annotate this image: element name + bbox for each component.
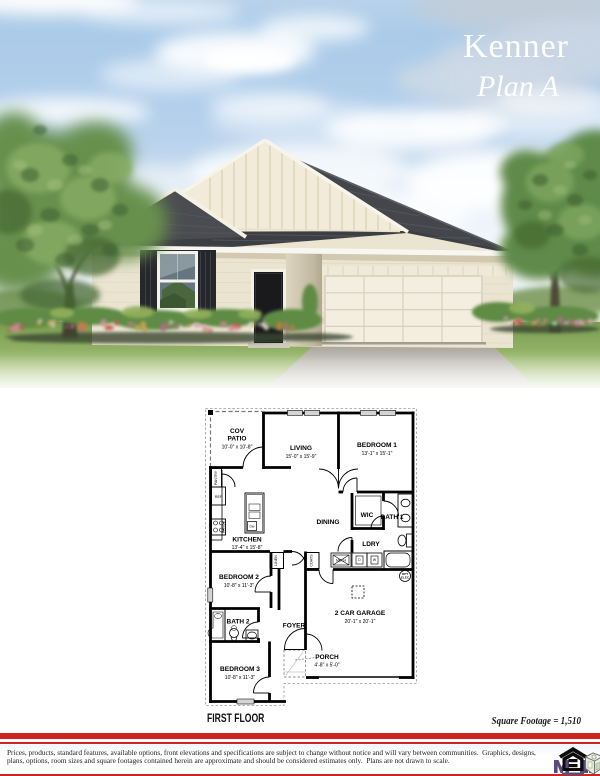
- svg-text:LDRY: LDRY: [362, 541, 380, 548]
- svg-text:BEDROOM 1: BEDROOM 1: [357, 442, 397, 449]
- svg-text:10'-8" x 11'-3": 10'-8" x 11'-3": [225, 675, 256, 681]
- svg-text:BATH 1: BATH 1: [381, 514, 404, 521]
- svg-text:10'-8" x 11'-3": 10'-8" x 11'-3": [224, 583, 255, 589]
- svg-text:BEDROOM 2: BEDROOM 2: [219, 574, 259, 581]
- svg-text:ELEC: ELEC: [401, 576, 410, 580]
- svg-text:LINEN: LINEN: [274, 555, 278, 566]
- svg-text:BATH 2: BATH 2: [227, 619, 250, 626]
- svg-text:PORCH: PORCH: [315, 654, 339, 661]
- svg-text:RANGE: RANGE: [222, 520, 226, 533]
- svg-text:PANTRY: PANTRY: [214, 470, 218, 485]
- svg-text:15'-0" x 15'-9": 15'-0" x 15'-9": [286, 454, 317, 460]
- svg-text:DW: DW: [250, 525, 255, 529]
- svg-text:COATS: COATS: [310, 554, 314, 567]
- svg-text:20'-1" x 20'-1": 20'-1" x 20'-1": [345, 619, 376, 625]
- svg-text:4'-8" x 5'-0": 4'-8" x 5'-0": [314, 663, 339, 669]
- svg-text:COV: COV: [230, 428, 245, 435]
- svg-text:REF: REF: [215, 495, 223, 499]
- svg-text:10'-0" x 10'-8": 10'-0" x 10'-8": [222, 445, 253, 451]
- svg-text:13'-1" x 15'-1": 13'-1" x 15'-1": [362, 451, 393, 457]
- svg-text:DINING: DINING: [316, 519, 339, 526]
- svg-text:FOYER: FOYER: [283, 623, 306, 630]
- svg-text:W: W: [373, 558, 377, 562]
- svg-text:2 CAR GARAGE: 2 CAR GARAGE: [335, 610, 386, 617]
- svg-text:13'-4" x 15'-8": 13'-4" x 15'-8": [232, 545, 263, 551]
- svg-text:MECH: MECH: [336, 559, 347, 563]
- svg-text:D: D: [358, 558, 361, 562]
- svg-text:PATIO: PATIO: [228, 436, 247, 443]
- svg-text:BEDROOM 3: BEDROOM 3: [220, 666, 260, 673]
- svg-text:WIC: WIC: [361, 512, 374, 519]
- svg-text:LIVING: LIVING: [290, 445, 312, 452]
- svg-text:KITCHEN: KITCHEN: [232, 537, 262, 544]
